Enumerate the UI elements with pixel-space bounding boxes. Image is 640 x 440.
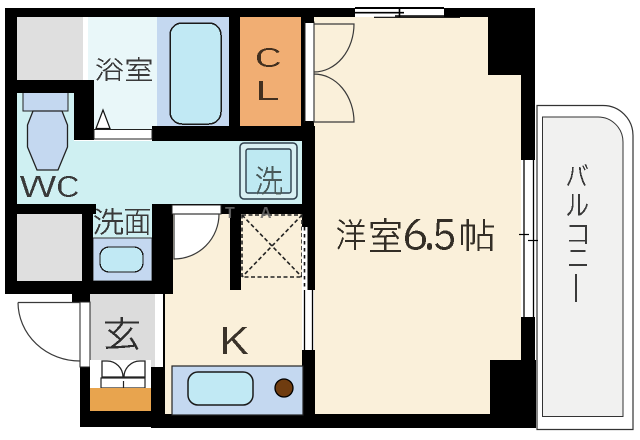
- svg-text:T: T: [225, 205, 235, 222]
- svg-text:A: A: [260, 205, 272, 222]
